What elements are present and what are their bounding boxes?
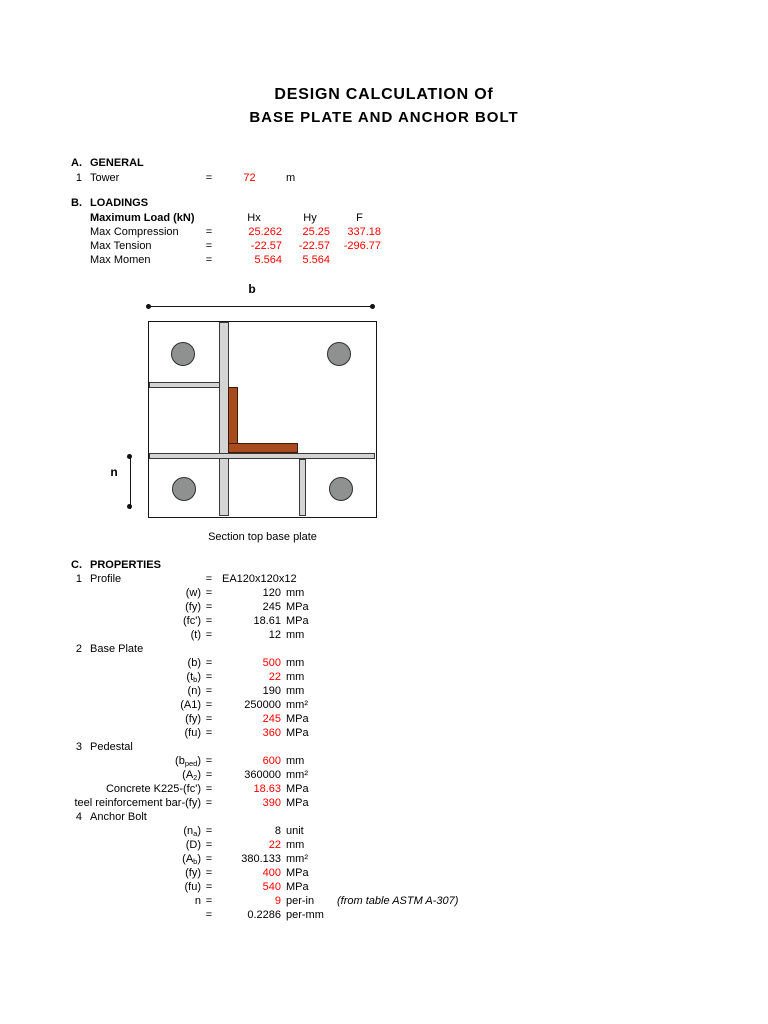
loading-value-hx: -22.57 xyxy=(218,239,282,253)
loading-label: Max Compression xyxy=(90,225,179,239)
dim-dot xyxy=(370,304,375,309)
doc-title-line-2: BASE PLATE AND ANCHOR BOLT xyxy=(0,109,768,126)
param-unit: mm xyxy=(286,684,304,698)
angle-profile-horizontal-leg xyxy=(228,443,298,453)
dim-dot xyxy=(127,454,132,459)
property-param-row: (na)=8unit xyxy=(0,824,768,838)
param-value: 9 xyxy=(218,894,281,908)
item-number: 1 xyxy=(0,171,82,185)
item-label: Tower xyxy=(90,171,119,185)
param-value: 360000 xyxy=(218,768,281,782)
stiffener-bottom-short xyxy=(299,459,306,516)
property-param-row: n=9per-in(from table ASTM A-307) xyxy=(0,894,768,908)
param-value: 360 xyxy=(218,726,281,740)
param-unit: mm xyxy=(286,838,304,852)
param-label: (fy) xyxy=(0,866,201,880)
property-param-row: (b)=500mm xyxy=(0,656,768,670)
properties-rows: 1Profile=EA120x120x12(w)=120mm(fy)=245MP… xyxy=(0,572,768,922)
loading-row: Max Tension=-22.57-22.57-296.77 xyxy=(0,239,768,253)
param-unit: MPa xyxy=(286,726,309,740)
param-value: 600 xyxy=(218,754,281,768)
item-label: Pedestal xyxy=(90,740,133,754)
param-value: 540 xyxy=(218,880,281,894)
loading-row: Max Momen=5.5645.564 xyxy=(0,253,768,267)
param-label: (b) xyxy=(0,656,201,670)
equals-sign: = xyxy=(201,782,217,796)
equals-sign: = xyxy=(201,225,217,239)
equals-sign: = xyxy=(201,754,217,768)
param-value: 18.61 xyxy=(218,614,281,628)
param-value: 12 xyxy=(218,628,281,642)
param-label: (fy) xyxy=(0,600,201,614)
dim-dot xyxy=(127,504,132,509)
equals-sign: = xyxy=(201,586,217,600)
loading-value-hx: 5.564 xyxy=(218,253,282,267)
param-label: (fu) xyxy=(0,880,201,894)
param-unit: MPa xyxy=(286,782,309,796)
param-label-subscript: 2 xyxy=(193,773,197,782)
param-unit: MPa xyxy=(286,600,309,614)
item-text-value: EA120x120x12 xyxy=(222,572,297,586)
loading-value-hy: -22.57 xyxy=(282,239,330,253)
dim-label-b: b xyxy=(244,282,260,296)
property-param-row: (n)=190mm xyxy=(0,684,768,698)
section-letter: C. xyxy=(0,558,82,572)
property-item-row: 1Profile=EA120x120x12 xyxy=(0,572,768,586)
param-unit: mm² xyxy=(286,852,308,866)
equals-sign: = xyxy=(201,698,217,712)
param-unit: mm xyxy=(286,586,304,600)
equals-sign: = xyxy=(201,824,217,838)
loading-value-hx: 25.262 xyxy=(218,225,282,239)
anchor-bolt-bottom-left xyxy=(172,477,196,501)
stiffener-left-short xyxy=(149,382,220,388)
property-param-row: Concrete K225-(fc')=18.63MPa xyxy=(0,782,768,796)
param-unit: mm² xyxy=(286,768,308,782)
property-param-row: (fu)=360MPa xyxy=(0,726,768,740)
section-loadings-header: B. LOADINGS xyxy=(0,196,768,211)
equals-sign: = xyxy=(201,253,217,267)
item-number: 4 xyxy=(0,810,82,824)
property-param-row: (A2)=360000mm² xyxy=(0,768,768,782)
loadings-rows: Max Compression=25.26225.25337.18Max Ten… xyxy=(0,225,768,267)
param-value: 120 xyxy=(218,586,281,600)
param-label: teel reinforcement bar-(fy) xyxy=(0,796,201,810)
param-unit: per-in xyxy=(286,894,314,908)
column-header-hx: Hx xyxy=(222,211,286,225)
property-param-row: (w)=120mm xyxy=(0,586,768,600)
param-unit: mm xyxy=(286,670,304,684)
general-rows: 1Tower=72m xyxy=(0,171,768,185)
dim-dot xyxy=(146,304,151,309)
param-unit: mm xyxy=(286,754,304,768)
param-label: (A1) xyxy=(0,698,201,712)
property-param-row: (Ab)=380.133mm² xyxy=(0,852,768,866)
property-item-row: 4Anchor Bolt xyxy=(0,810,768,824)
section-general-header: A. GENERAL xyxy=(0,156,768,171)
param-unit: MPa xyxy=(286,866,309,880)
equals-sign: = xyxy=(201,628,217,642)
section-general: A. GENERAL 1Tower=72m xyxy=(0,156,768,185)
anchor-bolt-top-right xyxy=(327,342,351,366)
param-value: 250000 xyxy=(218,698,281,712)
equals-sign: = xyxy=(201,908,217,922)
param-value: 500 xyxy=(218,656,281,670)
param-value: 245 xyxy=(218,600,281,614)
equals-sign: = xyxy=(201,171,217,185)
param-unit: per-mm xyxy=(286,908,324,922)
param-unit: MPa xyxy=(286,796,309,810)
item-value: 72 xyxy=(218,171,281,185)
loadings-table-header: Maximum Load (kN) Hx Hy F xyxy=(0,211,768,225)
param-label: Concrete K225-(fc') xyxy=(0,782,201,796)
param-label: (fc') xyxy=(0,614,201,628)
equals-sign: = xyxy=(201,880,217,894)
item-number: 3 xyxy=(0,740,82,754)
param-label-subscript: ped xyxy=(185,759,198,768)
equals-sign: = xyxy=(201,894,217,908)
param-unit: mm xyxy=(286,656,304,670)
loading-value-f: -296.77 xyxy=(330,239,381,253)
item-number: 1 xyxy=(0,572,82,586)
equals-sign: = xyxy=(201,838,217,852)
equals-sign: = xyxy=(201,670,217,684)
param-label: (fy) xyxy=(0,712,201,726)
equals-sign: = xyxy=(201,656,217,670)
param-value: 8 xyxy=(218,824,281,838)
param-unit: unit xyxy=(286,824,304,838)
dim-line-b xyxy=(148,306,374,307)
param-unit: MPa xyxy=(286,712,309,726)
param-unit: mm xyxy=(286,628,304,642)
param-label: n xyxy=(0,894,201,908)
param-label-subscript: b xyxy=(193,857,197,866)
loading-value-hy: 5.564 xyxy=(282,253,330,267)
property-param-row: (fy)=245MPa xyxy=(0,712,768,726)
section-heading: PROPERTIES xyxy=(90,558,161,572)
item-label: Base Plate xyxy=(90,642,143,656)
equals-sign: = xyxy=(201,239,217,253)
equals-sign: = xyxy=(201,600,217,614)
param-value: 400 xyxy=(218,866,281,880)
loading-label: Max Tension xyxy=(90,239,152,253)
equals-sign: = xyxy=(201,614,217,628)
property-param-row: teel reinforcement bar-(fy)=390MPa xyxy=(0,796,768,810)
property-item-row: 3Pedestal xyxy=(0,740,768,754)
param-value: 22 xyxy=(218,670,281,684)
param-label: (t) xyxy=(0,628,201,642)
general-row: 1Tower=72m xyxy=(0,171,768,185)
property-param-row: (fy)=245MPa xyxy=(0,600,768,614)
param-value: 0.2286 xyxy=(218,908,281,922)
column-header-hy: Hy xyxy=(286,211,334,225)
diagram-caption: Section top base plate xyxy=(148,531,377,543)
property-item-row: 2Base Plate xyxy=(0,642,768,656)
param-label-subscript: a xyxy=(193,829,197,838)
property-param-row: (bped)=600mm xyxy=(0,754,768,768)
equals-sign: = xyxy=(201,712,217,726)
section-properties-header: C. PROPERTIES xyxy=(0,558,768,572)
section-letter: A. xyxy=(0,156,82,170)
loading-row: Max Compression=25.26225.25337.18 xyxy=(0,225,768,239)
section-properties: C. PROPERTIES 1Profile=EA120x120x12(w)=1… xyxy=(0,558,768,922)
equals-sign: = xyxy=(201,852,217,866)
section-loadings: B. LOADINGS Maximum Load (kN) Hx Hy F Ma… xyxy=(0,196,768,267)
param-value: 390 xyxy=(218,796,281,810)
param-note: (from table ASTM A-307) xyxy=(337,894,458,908)
param-value: 22 xyxy=(218,838,281,852)
param-value: 190 xyxy=(218,684,281,698)
section-heading: LOADINGS xyxy=(90,196,148,210)
column-header-f: F xyxy=(334,211,385,225)
item-number: 2 xyxy=(0,642,82,656)
param-label: (D) xyxy=(0,838,201,852)
anchor-bolt-bottom-right xyxy=(329,477,353,501)
param-unit: mm² xyxy=(286,698,308,712)
document-page: DESIGN CALCULATION Of BASE PLATE AND ANC… xyxy=(0,0,768,1024)
section-letter: B. xyxy=(0,196,82,210)
property-param-row: (tb)=22mm xyxy=(0,670,768,684)
param-value: 245 xyxy=(218,712,281,726)
property-param-row: =0.2286per-mm xyxy=(0,908,768,922)
param-unit: MPa xyxy=(286,880,309,894)
base-plate-outline xyxy=(148,321,377,518)
param-label-subscript: b xyxy=(193,675,197,684)
property-param-row: (A1)=250000mm² xyxy=(0,698,768,712)
loadings-header-label: Maximum Load (kN) xyxy=(90,211,195,225)
doc-title-line-1: DESIGN CALCULATION Of xyxy=(0,86,768,104)
equals-sign: = xyxy=(201,768,217,782)
param-label: (n) xyxy=(0,684,201,698)
equals-sign: = xyxy=(201,866,217,880)
param-label: (w) xyxy=(0,586,201,600)
item-label: Profile xyxy=(90,572,121,586)
equals-sign: = xyxy=(201,726,217,740)
loading-value-hy: 25.25 xyxy=(282,225,330,239)
equals-sign: = xyxy=(201,796,217,810)
item-label: Anchor Bolt xyxy=(90,810,147,824)
param-unit: MPa xyxy=(286,614,309,628)
property-param-row: (t)=12mm xyxy=(0,628,768,642)
property-param-row: (fy)=400MPa xyxy=(0,866,768,880)
property-param-row: (D)=22mm xyxy=(0,838,768,852)
equals-sign: = xyxy=(201,684,217,698)
property-param-row: (fu)=540MPa xyxy=(0,880,768,894)
dim-label-n: n xyxy=(106,465,122,479)
anchor-bolt-top-left xyxy=(171,342,195,366)
param-label: (fu) xyxy=(0,726,201,740)
loading-value-f: 337.18 xyxy=(330,225,381,239)
section-heading: GENERAL xyxy=(90,156,144,170)
property-param-row: (fc')=18.61MPa xyxy=(0,614,768,628)
item-unit: m xyxy=(286,171,295,185)
loading-label: Max Momen xyxy=(90,253,151,267)
param-value: 380.133 xyxy=(218,852,281,866)
stiffener-horizontal xyxy=(149,453,375,459)
equals-sign: = xyxy=(201,572,217,586)
dim-line-n xyxy=(130,457,131,509)
param-value: 18.63 xyxy=(218,782,281,796)
